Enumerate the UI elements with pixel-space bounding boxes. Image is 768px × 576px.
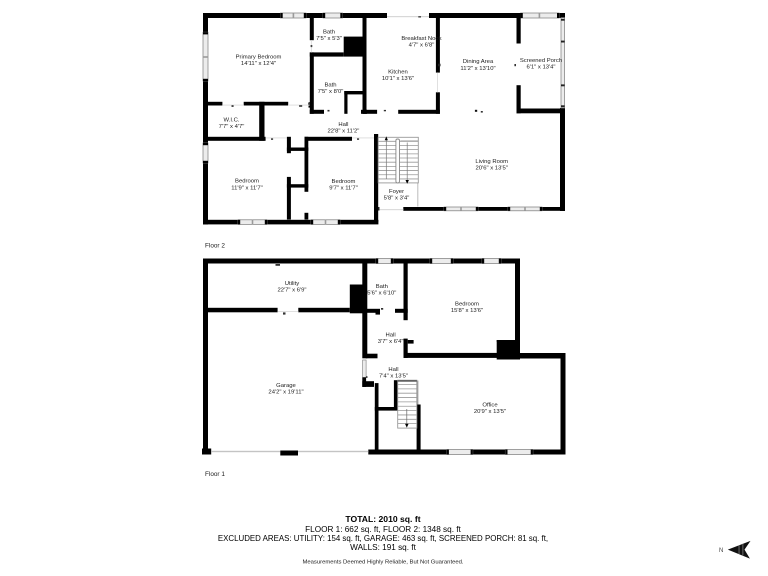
svg-text:5'6" x 6'10": 5'6" x 6'10" [367, 290, 396, 296]
svg-text:Hall: Hall [386, 332, 396, 338]
svg-text:Bedroom: Bedroom [332, 179, 356, 185]
svg-text:Bath: Bath [323, 30, 335, 36]
svg-text:3'7" x 6'4": 3'7" x 6'4" [378, 339, 404, 345]
svg-text:Bedroom: Bedroom [235, 179, 259, 185]
svg-text:20'6" x 13'5": 20'6" x 13'5" [476, 166, 508, 172]
svg-text:7'7" x 4'7": 7'7" x 4'7" [219, 124, 245, 130]
svg-text:W.I.C.: W.I.C. [223, 117, 239, 123]
svg-text:Bedroom: Bedroom [455, 301, 479, 307]
svg-text:22'7" x 6'9": 22'7" x 6'9" [277, 287, 306, 293]
svg-text:7'4" x 13'5": 7'4" x 13'5" [379, 373, 408, 379]
svg-text:Kitchen: Kitchen [388, 70, 408, 76]
svg-text:Living Room: Living Room [475, 159, 508, 165]
svg-text:Screened Porch: Screened Porch [520, 58, 562, 64]
svg-text:4'7" x 6'8": 4'7" x 6'8" [409, 43, 435, 49]
svg-text:11'2" x 13'10": 11'2" x 13'10" [460, 66, 495, 72]
svg-text:9'7" x 11'7": 9'7" x 11'7" [329, 186, 358, 192]
svg-text:Primary Bedroom: Primary Bedroom [236, 55, 282, 61]
svg-text:6'1" x 13'4": 6'1" x 13'4" [526, 65, 555, 71]
svg-text:Garage: Garage [276, 383, 296, 389]
svg-text:EXCLUDED AREAS: UTILITY: 154 s: EXCLUDED AREAS: UTILITY: 154 sq. ft, GAR… [218, 534, 548, 543]
svg-text:7'5" x 8'0": 7'5" x 8'0" [318, 89, 344, 95]
svg-text:Office: Office [482, 402, 498, 408]
svg-text:TOTAL: 2010 sq. ft: TOTAL: 2010 sq. ft [345, 514, 420, 524]
svg-text:14'11" x 12'4": 14'11" x 12'4" [241, 61, 276, 67]
svg-text:Dining Area: Dining Area [463, 59, 494, 65]
svg-text:5'8" x 3'4": 5'8" x 3'4" [384, 195, 410, 201]
svg-text:Hall: Hall [388, 367, 398, 373]
svg-text:Utility: Utility [285, 281, 299, 287]
svg-text:20'9" x 13'5": 20'9" x 13'5" [474, 409, 506, 415]
svg-text:15'8" x 13'6": 15'8" x 13'6" [451, 308, 483, 314]
svg-text:10'1" x 13'6": 10'1" x 13'6" [382, 76, 414, 82]
svg-text:Floor 1: Floor 1 [205, 471, 225, 478]
svg-text:11'9" x 11'7": 11'9" x 11'7" [231, 185, 262, 191]
svg-text:Foyer: Foyer [389, 189, 404, 195]
svg-text:Measurements Deemed Highly Rel: Measurements Deemed Highly Reliable, But… [302, 559, 463, 565]
svg-text:N: N [719, 548, 723, 554]
svg-text:Hall: Hall [338, 122, 348, 128]
svg-text:7'5" x 5'3": 7'5" x 5'3" [316, 36, 342, 42]
svg-text:WALLS: 191 sq. ft: WALLS: 191 sq. ft [350, 543, 416, 552]
svg-text:24'2" x 19'11": 24'2" x 19'11" [268, 389, 303, 395]
svg-text:Bath: Bath [324, 82, 336, 88]
svg-text:22'8" x 11'2": 22'8" x 11'2" [327, 128, 359, 134]
svg-text:Floor 2: Floor 2 [205, 243, 225, 250]
svg-text:FLOOR 1: 662 sq. ft, FLOOR 2:: FLOOR 1: 662 sq. ft, FLOOR 2: 1348 sq. f… [305, 525, 461, 534]
svg-text:Bath: Bath [376, 284, 388, 290]
svg-text:Breakfast Nook: Breakfast Nook [401, 36, 441, 42]
